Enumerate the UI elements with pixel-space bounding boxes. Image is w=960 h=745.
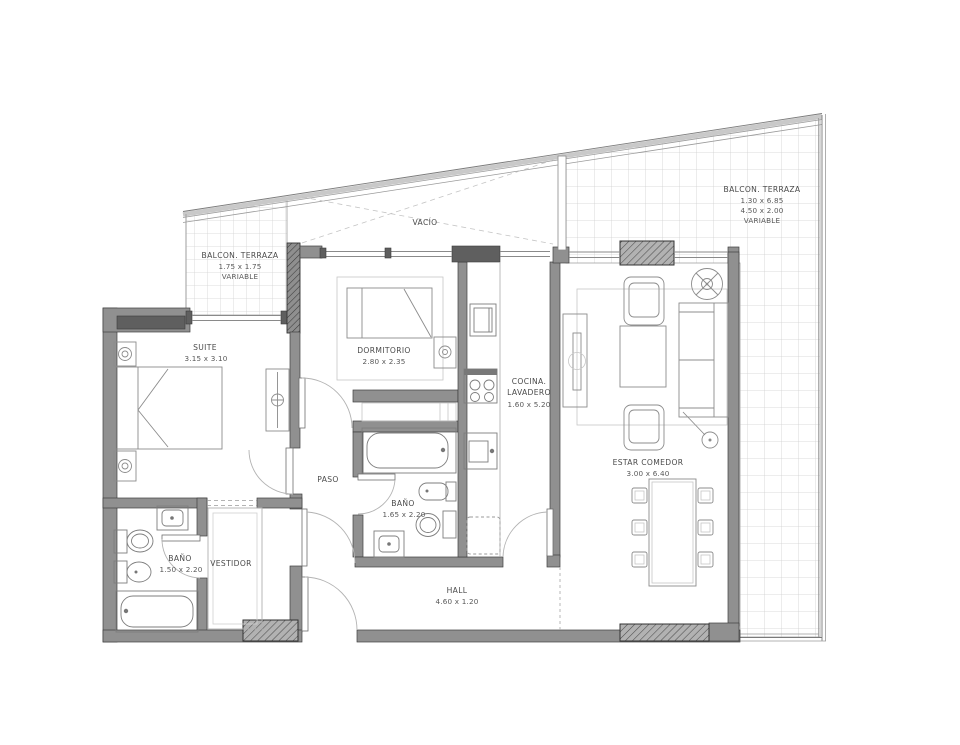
suite-window-bar xyxy=(117,316,185,329)
fridge-icon xyxy=(470,304,496,336)
suite-door xyxy=(249,448,293,494)
washing-machine-icon xyxy=(467,517,500,554)
bottom-wall-endcap xyxy=(709,623,739,641)
bathtub-icon xyxy=(362,428,456,473)
suite-dims: 3.15 x 3.10 xyxy=(184,354,227,363)
bidet-icon xyxy=(419,482,456,501)
suite-window-jamb-left xyxy=(186,311,192,324)
cocina-label-2: LAVADERO xyxy=(507,388,551,397)
dormitorio-top-stub xyxy=(300,246,322,258)
bano-suite-label: BAÑO xyxy=(168,554,191,563)
balcon-der-dims-b: 4.50 x 2.00 xyxy=(740,206,783,215)
armchair xyxy=(624,405,664,450)
double-bed xyxy=(116,367,222,449)
floor-plan-drawing: SUITE 3.15 x 3.10 DORMITORIO 2.80 x 2.35… xyxy=(0,0,960,745)
left-exterior-wall xyxy=(103,308,117,642)
bano-suite-top-wall xyxy=(103,498,207,508)
dormitorio-bottom-wall xyxy=(353,390,458,402)
window-mullion xyxy=(385,248,391,258)
column-estar-top xyxy=(620,241,674,265)
vestidor-door xyxy=(302,509,355,566)
dormitorio-dims: 2.80 x 2.35 xyxy=(362,357,405,366)
cocina-label-1: COCINA. xyxy=(512,377,546,386)
balcon-izq-dims: 1.75 x 1.75 xyxy=(218,262,261,271)
suite-window xyxy=(192,316,281,321)
hall-label: HALL xyxy=(447,586,468,595)
balcon-der-label: BALCON. TERRAZA xyxy=(724,185,801,194)
vestidor-closet xyxy=(208,508,262,629)
bano-suite-dims: 1.50 x 2.20 xyxy=(159,565,202,574)
vanity-sink-icon xyxy=(157,506,188,530)
single-bed xyxy=(347,288,432,338)
dormitorio-label: DORMITORIO xyxy=(357,346,411,355)
estar-right-wall xyxy=(728,252,739,626)
estar-dims: 3.00 x 6.40 xyxy=(626,469,669,478)
vacio-label: VACÍO xyxy=(412,218,437,227)
sofa xyxy=(679,303,728,417)
dining-chairs xyxy=(632,488,713,567)
balcon-izq-label: BALCON. TERRAZA xyxy=(202,251,279,260)
bano-principal-label: BAÑO xyxy=(391,499,414,508)
ceiling-fan-icon xyxy=(692,269,723,300)
estar-furniture xyxy=(563,269,728,587)
balcon-der-dims-a: 1.30 x 6.85 xyxy=(740,196,783,205)
mullion-vacio-balcony xyxy=(558,156,566,250)
window-mullion xyxy=(320,248,326,258)
cocina-top-wall xyxy=(452,246,500,262)
tv-unit xyxy=(563,314,587,407)
bidet-icon xyxy=(114,561,151,583)
vestidor-top-wall xyxy=(257,498,302,508)
vestidor-label: VESTIDOR xyxy=(210,559,252,568)
column-vestidor-bottom xyxy=(243,620,298,641)
hall-dims: 4.60 x 1.20 xyxy=(435,597,478,606)
bano-left-wall-lower xyxy=(353,515,363,557)
suite-right-wall xyxy=(290,332,300,448)
cocina-fixtures xyxy=(464,262,500,557)
dormitorio-door xyxy=(299,378,352,428)
cocina-door xyxy=(503,509,553,557)
cocina-dims: 1.60 x 5.20 xyxy=(507,400,550,409)
bano-principal-dims: 1.65 x 2.20 xyxy=(382,510,425,519)
dining-table xyxy=(649,479,696,586)
bano-left-wall-upper xyxy=(353,432,363,477)
bano-principal-door xyxy=(358,474,395,514)
hall-top-wall xyxy=(355,557,503,567)
cocina-window xyxy=(500,252,550,257)
stove-icon xyxy=(464,369,497,403)
estar-label: ESTAR COMEDOR xyxy=(613,458,684,467)
bano-vestidor-divider-bottom xyxy=(197,578,207,632)
cocina-door-pier xyxy=(547,555,560,567)
pier-balcony-suite xyxy=(287,243,300,333)
cocina-left-wall xyxy=(458,262,467,557)
paso-label: PASO xyxy=(317,475,339,484)
nightstand xyxy=(434,337,456,368)
column-estar-bottom xyxy=(620,624,709,641)
balcon-izq-note: VARIABLE xyxy=(222,272,259,281)
shelf-ledge xyxy=(362,403,456,421)
floor-plan-page: SUITE 3.15 x 3.10 DORMITORIO 2.80 x 2.35… xyxy=(0,0,960,745)
armchair xyxy=(624,277,664,325)
balcon-der-note: VARIABLE xyxy=(744,216,781,225)
coffee-table xyxy=(620,326,666,387)
suite-label: SUITE xyxy=(193,343,217,352)
bano-top-wall xyxy=(353,421,458,432)
bathtub-icon xyxy=(116,591,198,632)
vanity-sink-icon xyxy=(374,531,404,557)
entry-door xyxy=(302,577,357,631)
kitchen-sink-icon xyxy=(464,433,497,469)
toilet-icon xyxy=(114,530,153,553)
void-area xyxy=(302,160,553,244)
bano-vestidor-divider-top xyxy=(197,498,207,536)
